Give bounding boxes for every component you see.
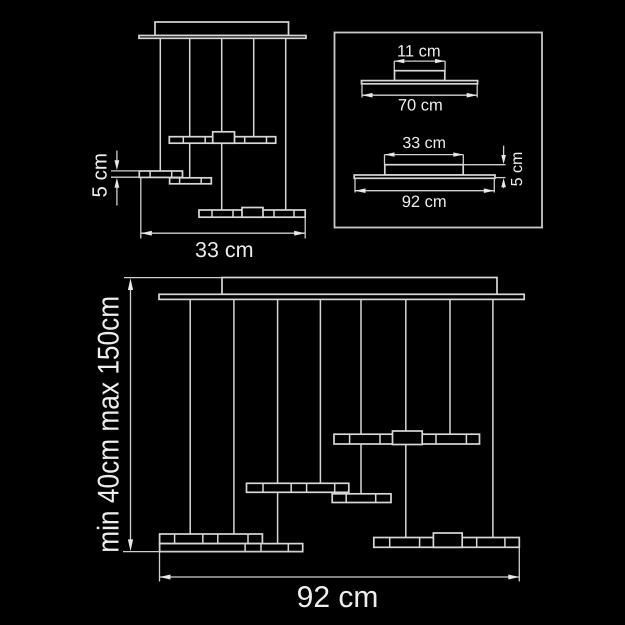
svg-text:5 cm: 5 cm — [89, 153, 112, 197]
svg-text:92 cm: 92 cm — [402, 193, 447, 211]
svg-text:92 cm: 92 cm — [297, 581, 379, 614]
svg-text:11 cm: 11 cm — [397, 43, 441, 61]
svg-text:33 cm: 33 cm — [402, 135, 446, 152]
svg-text:min 40cm max 150cm: min 40cm max 150cm — [93, 296, 126, 553]
svg-text:33 cm: 33 cm — [195, 238, 254, 262]
svg-text:70 cm: 70 cm — [398, 96, 443, 114]
svg-text:5 cm: 5 cm — [509, 152, 526, 187]
